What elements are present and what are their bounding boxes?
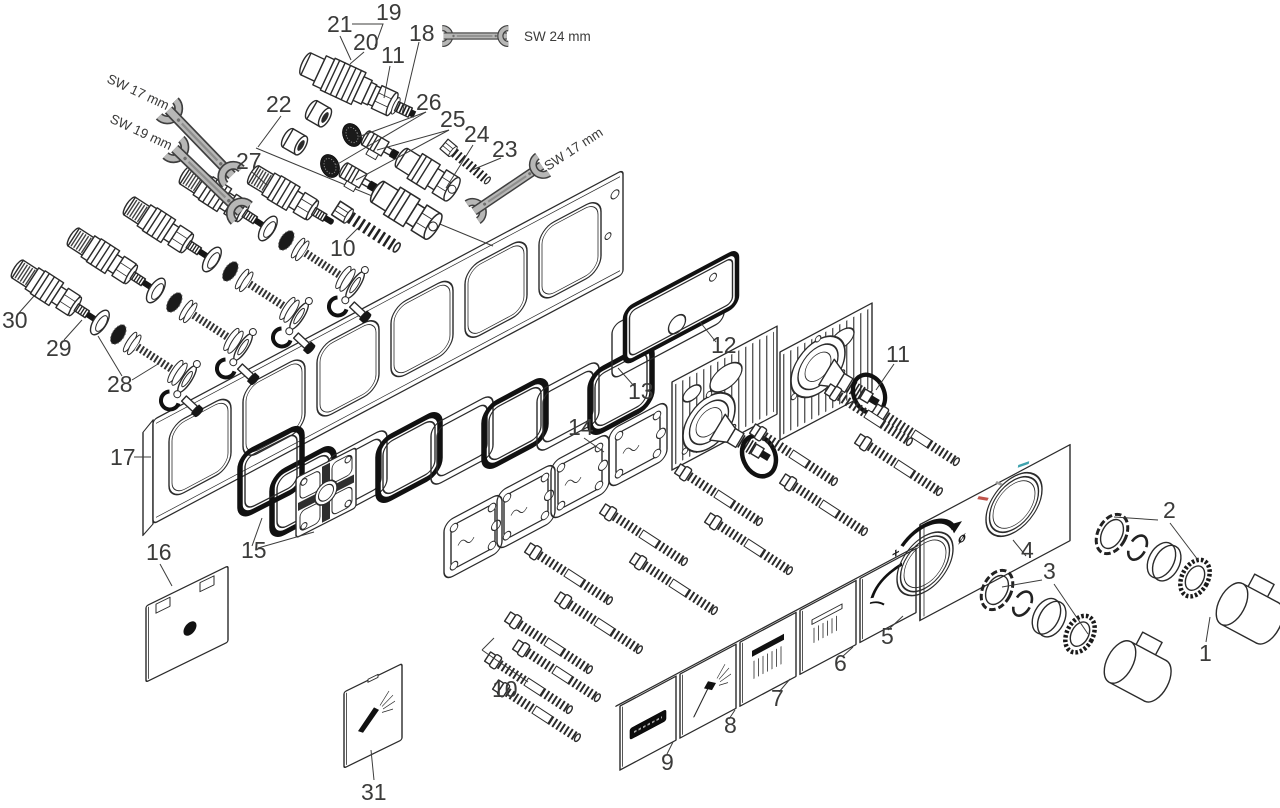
callout-3: 3 (1043, 558, 1056, 584)
callout-20: 20 (353, 29, 379, 55)
callout-31: 31 (361, 779, 387, 805)
callout-15: 15 (241, 537, 267, 563)
callout-22: 22 (266, 91, 292, 117)
callout-29: 29 (46, 335, 72, 361)
callout-17: 17 (110, 444, 136, 470)
callout-1: 1 (1199, 640, 1212, 666)
callout-24: 24 (464, 121, 490, 147)
callout-11-right: 11 (886, 341, 910, 367)
callout-13: 13 (628, 378, 654, 404)
callout-21: 21 (327, 11, 353, 37)
callout-26: 26 (416, 89, 442, 115)
callout-6: 6 (834, 650, 847, 676)
label-sw24: SW 24 mm (524, 29, 591, 44)
exploded-diagram: + ø (0, 0, 1280, 808)
callout-10-top: 10 (330, 235, 356, 261)
callout-28: 28 (107, 371, 133, 397)
callout-7: 7 (771, 685, 784, 711)
callout-18: 18 (409, 20, 435, 46)
callout-2: 2 (1163, 497, 1176, 523)
callout-16: 16 (146, 539, 172, 565)
callout-30: 30 (2, 307, 28, 333)
diagram-stage: + ø (0, 0, 1280, 808)
callout-14: 14 (568, 414, 594, 440)
callout-11-top: 11 (381, 42, 405, 68)
callout-5: 5 (881, 623, 894, 649)
callout-23: 23 (492, 136, 518, 162)
callout-8: 8 (724, 712, 737, 738)
callout-12: 12 (711, 332, 737, 358)
callout-9: 9 (661, 749, 674, 775)
callout-27: 27 (236, 148, 262, 174)
callout-10-bottom: 10 (492, 676, 518, 702)
callout-25: 25 (440, 106, 466, 132)
callout-4: 4 (1021, 537, 1034, 563)
callout-19: 19 (376, 0, 402, 25)
